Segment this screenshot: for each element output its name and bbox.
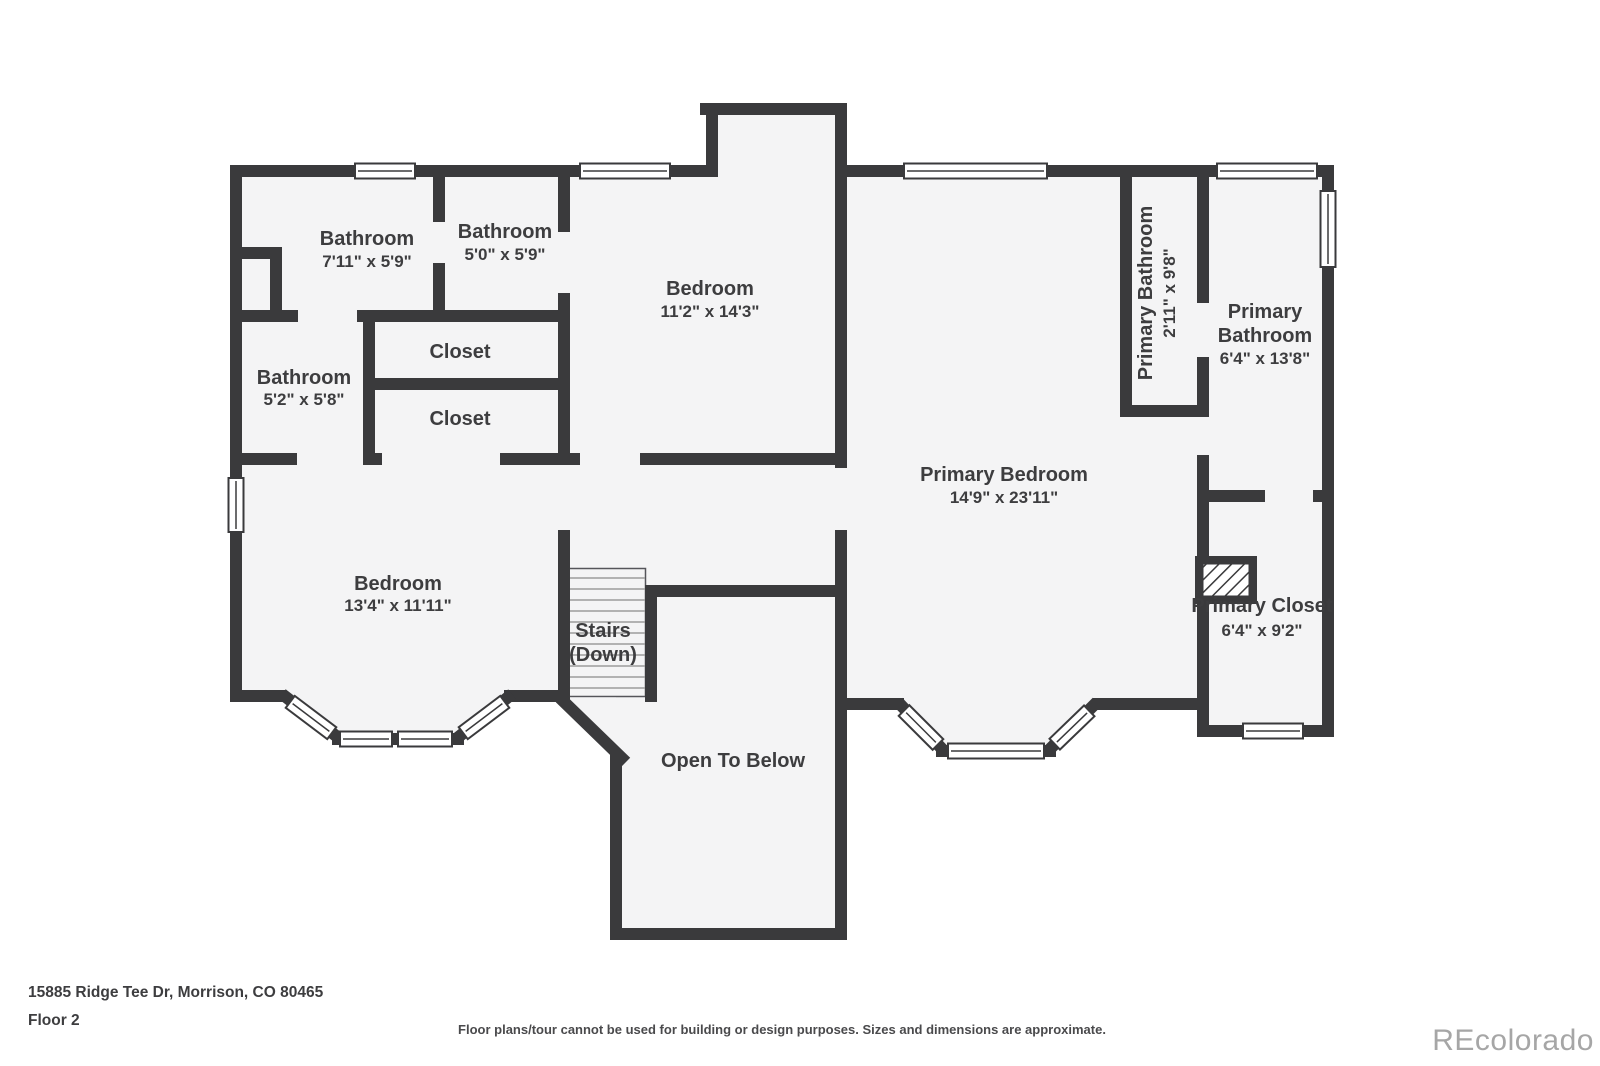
svg-text:Bedroom: Bedroom xyxy=(354,573,442,595)
svg-text:7'11" x 5'9": 7'11" x 5'9" xyxy=(322,252,411,271)
room-label-bedroom-left: Bedroom 13'4" x 11'11" xyxy=(344,573,451,615)
svg-text:Primary Bathroom: Primary Bathroom xyxy=(1135,206,1157,381)
svg-text:Primary Closet: Primary Closet xyxy=(1191,595,1333,617)
svg-text:5'0" x 5'9": 5'0" x 5'9" xyxy=(465,245,546,264)
footer-disclaimer: Floor plans/tour cannot be used for buil… xyxy=(0,1022,1564,1037)
svg-text:5'2" x 5'8": 5'2" x 5'8" xyxy=(264,390,345,409)
room-label-bathroom-left: Bathroom 5'2" x 5'8" xyxy=(257,367,351,409)
room-label-bathroom-top-left: Bathroom 7'11" x 5'9" xyxy=(320,228,414,271)
window-icon xyxy=(948,744,1044,759)
svg-text:11'2" x 14'3": 11'2" x 14'3" xyxy=(661,302,760,321)
room-label-closet-upper: Closet xyxy=(429,341,490,363)
svg-text:13'4" x 11'11": 13'4" x 11'11" xyxy=(344,596,451,615)
window-icon xyxy=(904,164,1047,179)
window-icon xyxy=(229,478,244,532)
window-icon xyxy=(1217,164,1317,179)
svg-text:Bathroom: Bathroom xyxy=(320,228,414,250)
svg-text:Open To Below: Open To Below xyxy=(661,750,806,772)
watermark-recolorado: REcolorado xyxy=(1432,1024,1594,1058)
svg-text:6'4" x 13'8": 6'4" x 13'8" xyxy=(1220,349,1310,368)
svg-text:(Down): (Down) xyxy=(569,644,637,666)
window-icon xyxy=(398,732,452,747)
svg-text:Bedroom: Bedroom xyxy=(666,278,754,300)
svg-text:Bathroom: Bathroom xyxy=(458,221,552,243)
svg-text:Bathroom: Bathroom xyxy=(1218,325,1312,347)
svg-text:Closet: Closet xyxy=(429,341,490,363)
room-label-primary-bathroom: Primary Bathroom 6'4" x 13'8" xyxy=(1218,301,1312,368)
room-label-bedroom-top: Bedroom 11'2" x 14'3" xyxy=(661,278,760,321)
svg-text:Primary Bedroom: Primary Bedroom xyxy=(920,464,1088,486)
svg-text:Bathroom: Bathroom xyxy=(257,367,351,389)
window-icon xyxy=(1243,724,1303,739)
room-label-closet-lower: Closet xyxy=(429,408,490,430)
floor-plan-page: Bathroom 7'11" x 5'9" Bathroom 5'0" x 5'… xyxy=(0,0,1600,1066)
footer-address: 15885 Ridge Tee Dr, Morrison, CO 80465 xyxy=(28,984,323,1002)
svg-text:Closet: Closet xyxy=(429,408,490,430)
svg-text:Stairs: Stairs xyxy=(575,620,631,642)
window-icon xyxy=(1321,191,1336,267)
window-icon xyxy=(355,164,415,179)
svg-text:6'4" x 9'2": 6'4" x 9'2" xyxy=(1222,621,1303,640)
svg-text:14'9" x 23'11": 14'9" x 23'11" xyxy=(950,488,1058,507)
svg-text:2'11" x 9'8": 2'11" x 9'8" xyxy=(1160,248,1179,337)
room-label-open-to-below: Open To Below xyxy=(661,750,806,772)
floor-plan-canvas: Bathroom 7'11" x 5'9" Bathroom 5'0" x 5'… xyxy=(0,0,1600,1066)
room-label-bathroom-top-middle: Bathroom 5'0" x 5'9" xyxy=(458,221,552,264)
window-icon xyxy=(340,732,392,747)
window-icon xyxy=(580,164,670,179)
svg-text:Primary: Primary xyxy=(1228,301,1303,323)
